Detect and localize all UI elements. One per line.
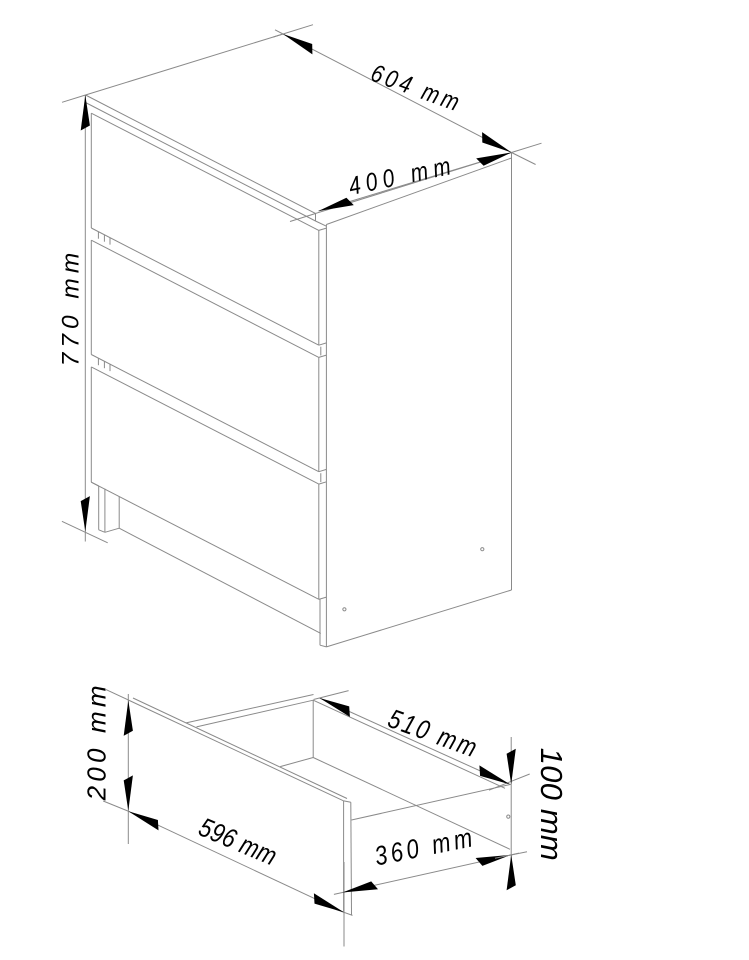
svg-text:596 mm: 596 mm: [194, 813, 281, 872]
svg-text:400 mm: 400 mm: [346, 150, 458, 200]
svg-text:604 mm: 604 mm: [367, 58, 466, 117]
svg-text:100 mm: 100 mm: [534, 748, 569, 861]
svg-text:360 mm: 360 mm: [372, 823, 478, 872]
svg-text:770 mm: 770 mm: [57, 248, 84, 367]
svg-text:200 mm: 200 mm: [82, 681, 112, 801]
